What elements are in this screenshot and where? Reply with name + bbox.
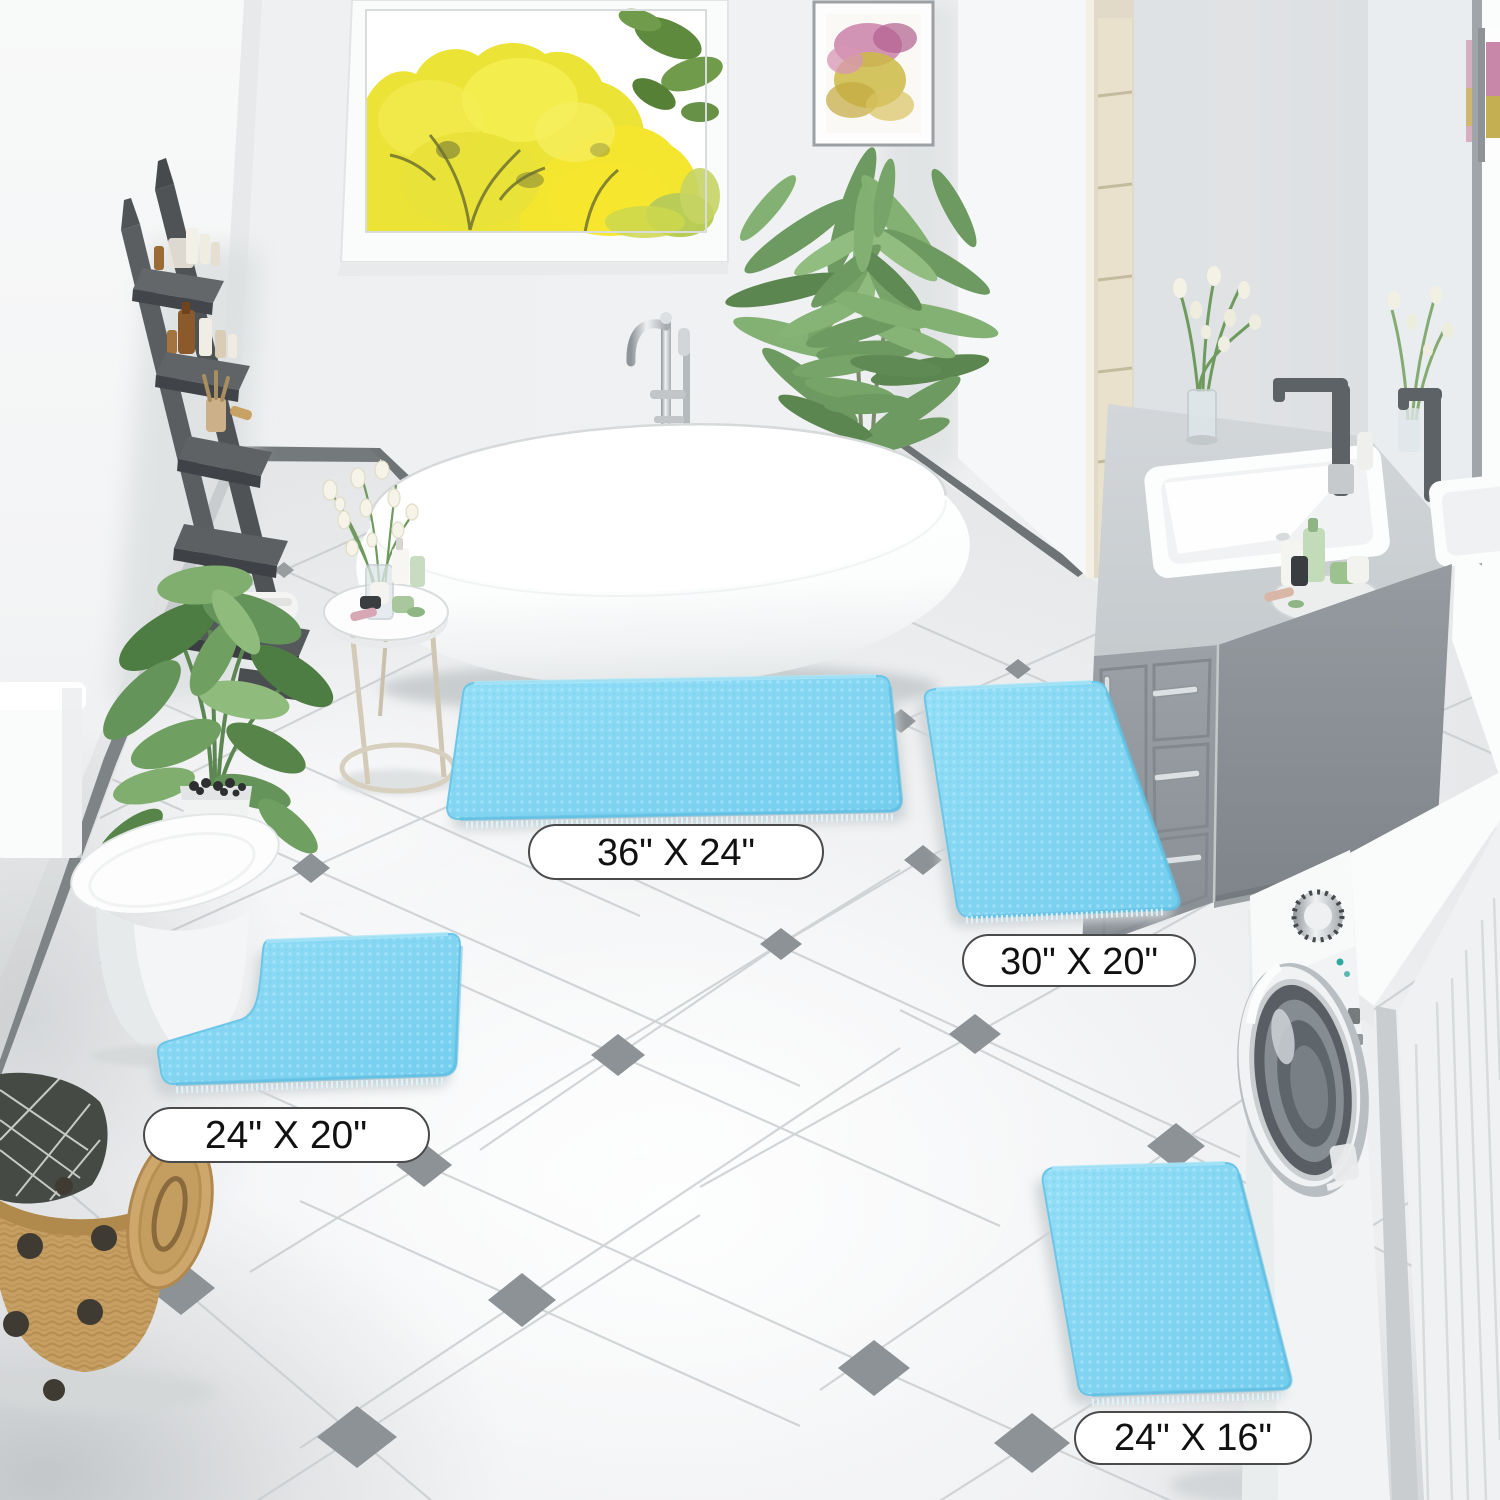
- svg-text:30" X 20": 30" X 20": [1000, 941, 1158, 983]
- svg-text:24" X 20": 24" X 20": [205, 1114, 367, 1157]
- svg-text:36" X 24": 36" X 24": [597, 832, 755, 874]
- svg-text:24" X 16": 24" X 16": [1114, 1417, 1272, 1459]
